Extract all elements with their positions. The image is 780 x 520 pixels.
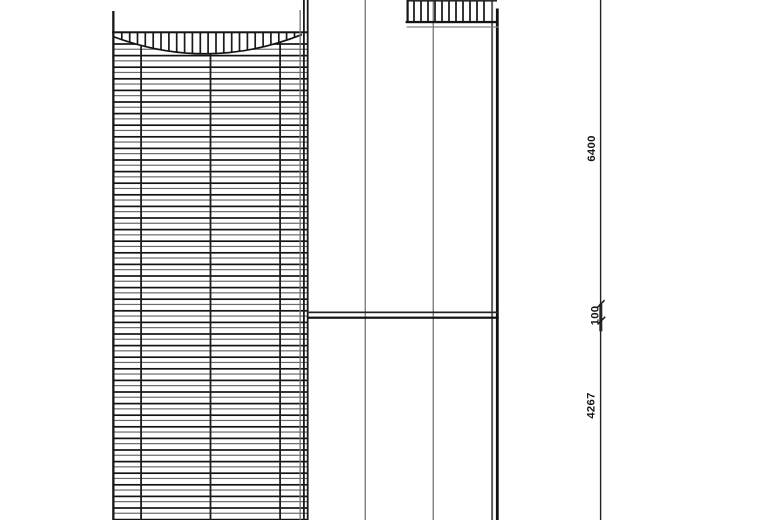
svg-text:100: 100 <box>590 306 602 326</box>
svg-text:6400: 6400 <box>586 135 598 161</box>
svg-text:4267: 4267 <box>586 392 598 418</box>
